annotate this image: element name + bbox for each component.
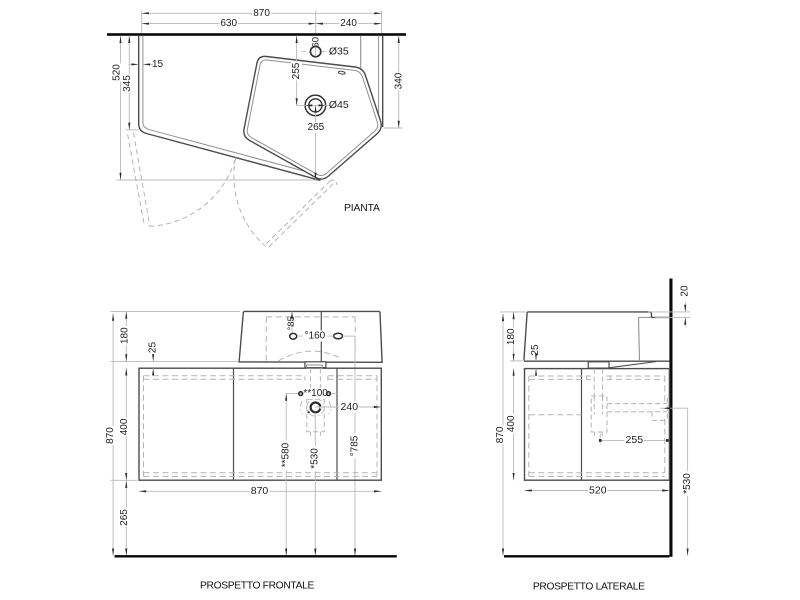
svg-text:25: 25 [530,344,541,356]
svg-text:870: 870 [105,427,116,444]
svg-text:400: 400 [506,415,517,432]
svg-text:Ø45: Ø45 [329,99,349,111]
svg-text:630: 630 [220,18,237,29]
svg-text:520: 520 [589,484,607,496]
svg-text:265: 265 [308,122,325,133]
svg-text:*530: *530 [310,448,321,469]
svg-text:PROSPETTO FRONTALE: PROSPETTO FRONTALE [200,580,315,591]
svg-text:340: 340 [393,72,404,89]
svg-text:°85: °85 [286,316,297,330]
svg-text:°785: °785 [349,435,360,456]
svg-text:*530: *530 [682,473,693,494]
svg-text:870: 870 [251,485,269,497]
svg-text:265: 265 [119,509,130,526]
svg-text:Ø35: Ø35 [329,45,349,57]
svg-text:20: 20 [679,285,690,297]
svg-text:240: 240 [341,401,359,413]
svg-text:**100: **100 [303,388,328,399]
svg-text:PROSPETTO LATERALE: PROSPETTO LATERALE [533,581,645,592]
svg-text:255: 255 [626,434,644,446]
svg-text:°160: °160 [305,331,326,342]
svg-text:870: 870 [253,8,270,19]
svg-text:25: 25 [147,342,158,354]
svg-text:400: 400 [119,418,130,435]
svg-text:870: 870 [495,426,506,443]
svg-text:520: 520 [111,64,122,81]
svg-text:180: 180 [506,328,517,345]
svg-text:180: 180 [120,327,131,344]
svg-text:255: 255 [291,62,302,79]
svg-text:**580: **580 [280,442,291,467]
svg-text:345: 345 [122,75,133,92]
svg-text:15: 15 [152,59,164,70]
svg-text:PIANTA: PIANTA [344,203,380,214]
svg-text:240: 240 [340,18,357,29]
